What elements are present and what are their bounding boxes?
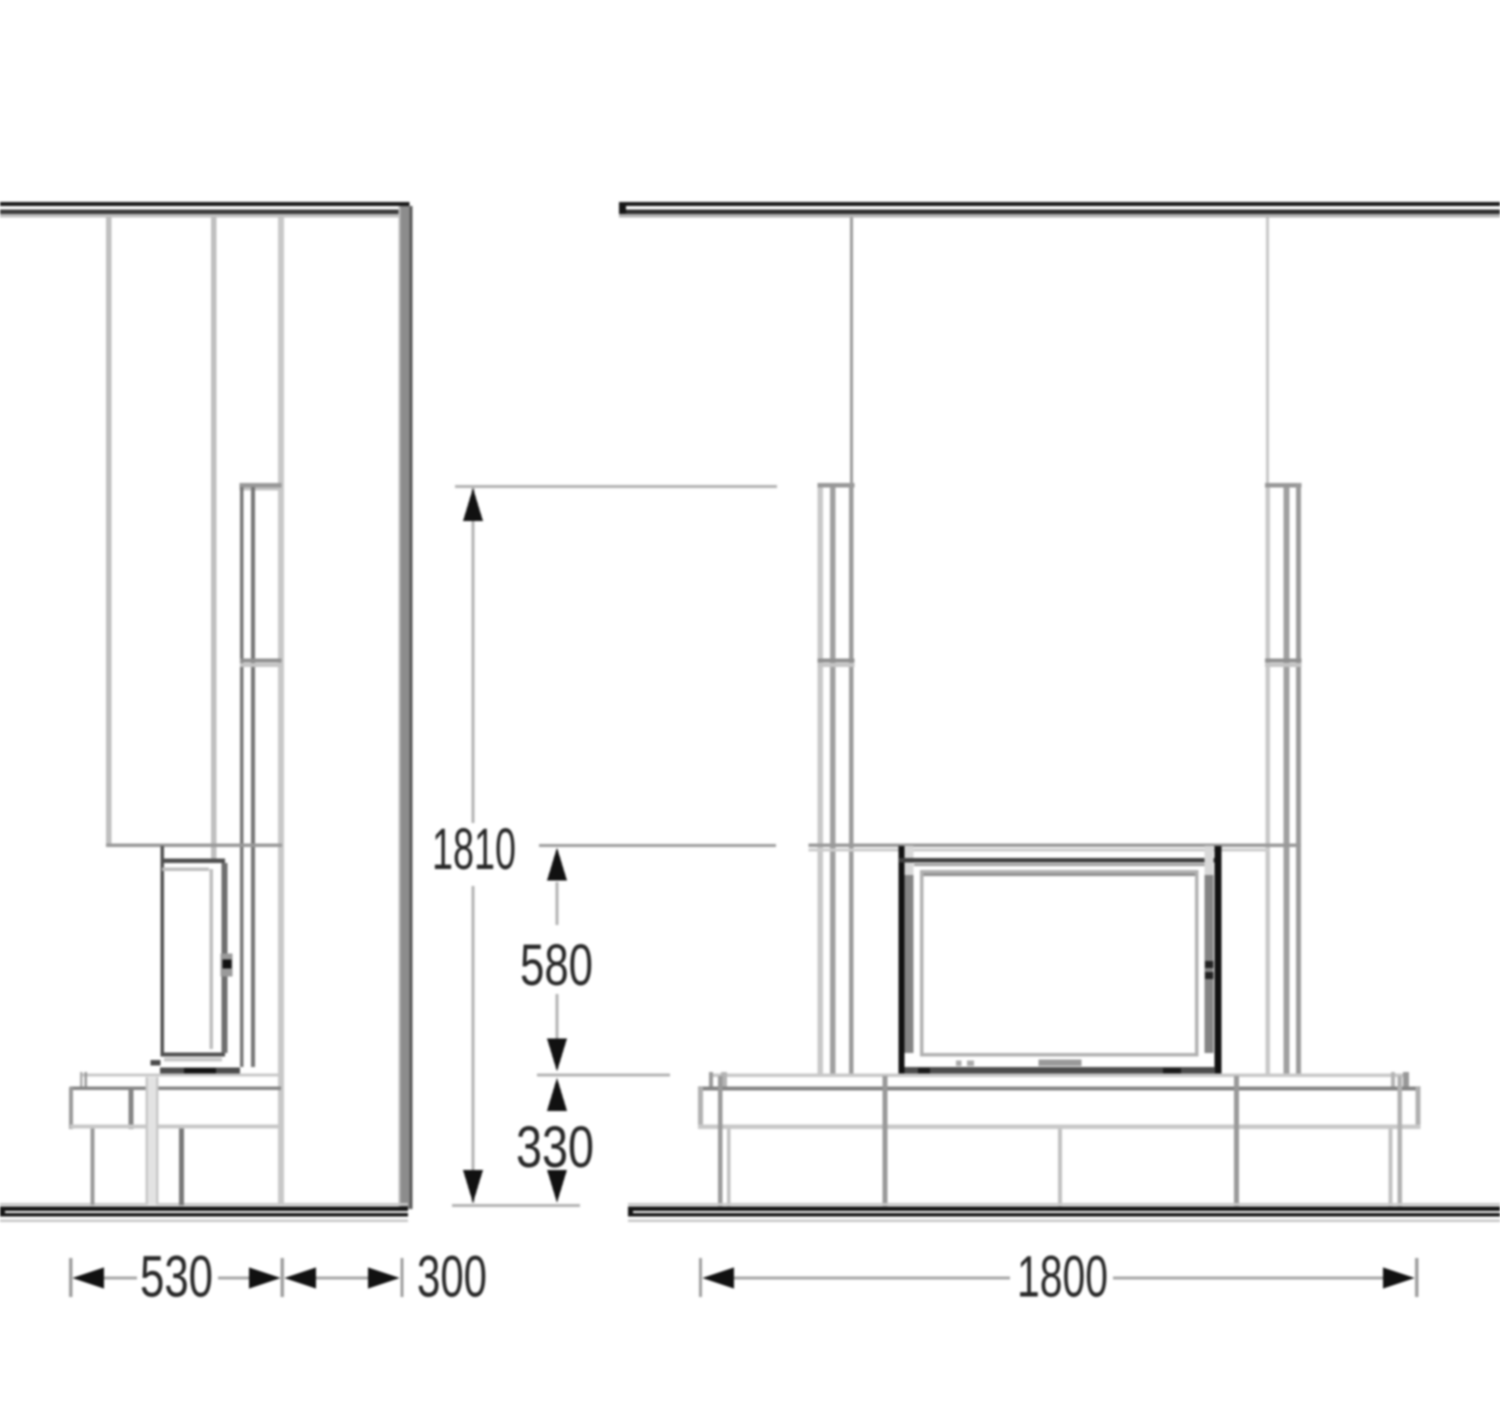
svg-text:580: 580 xyxy=(520,933,593,998)
svg-text:1800: 1800 xyxy=(1017,1245,1108,1310)
svg-text:300: 300 xyxy=(417,1245,487,1310)
svg-text:1810: 1810 xyxy=(432,817,516,882)
svg-text:330: 330 xyxy=(516,1115,594,1180)
svg-text:530: 530 xyxy=(140,1245,213,1310)
